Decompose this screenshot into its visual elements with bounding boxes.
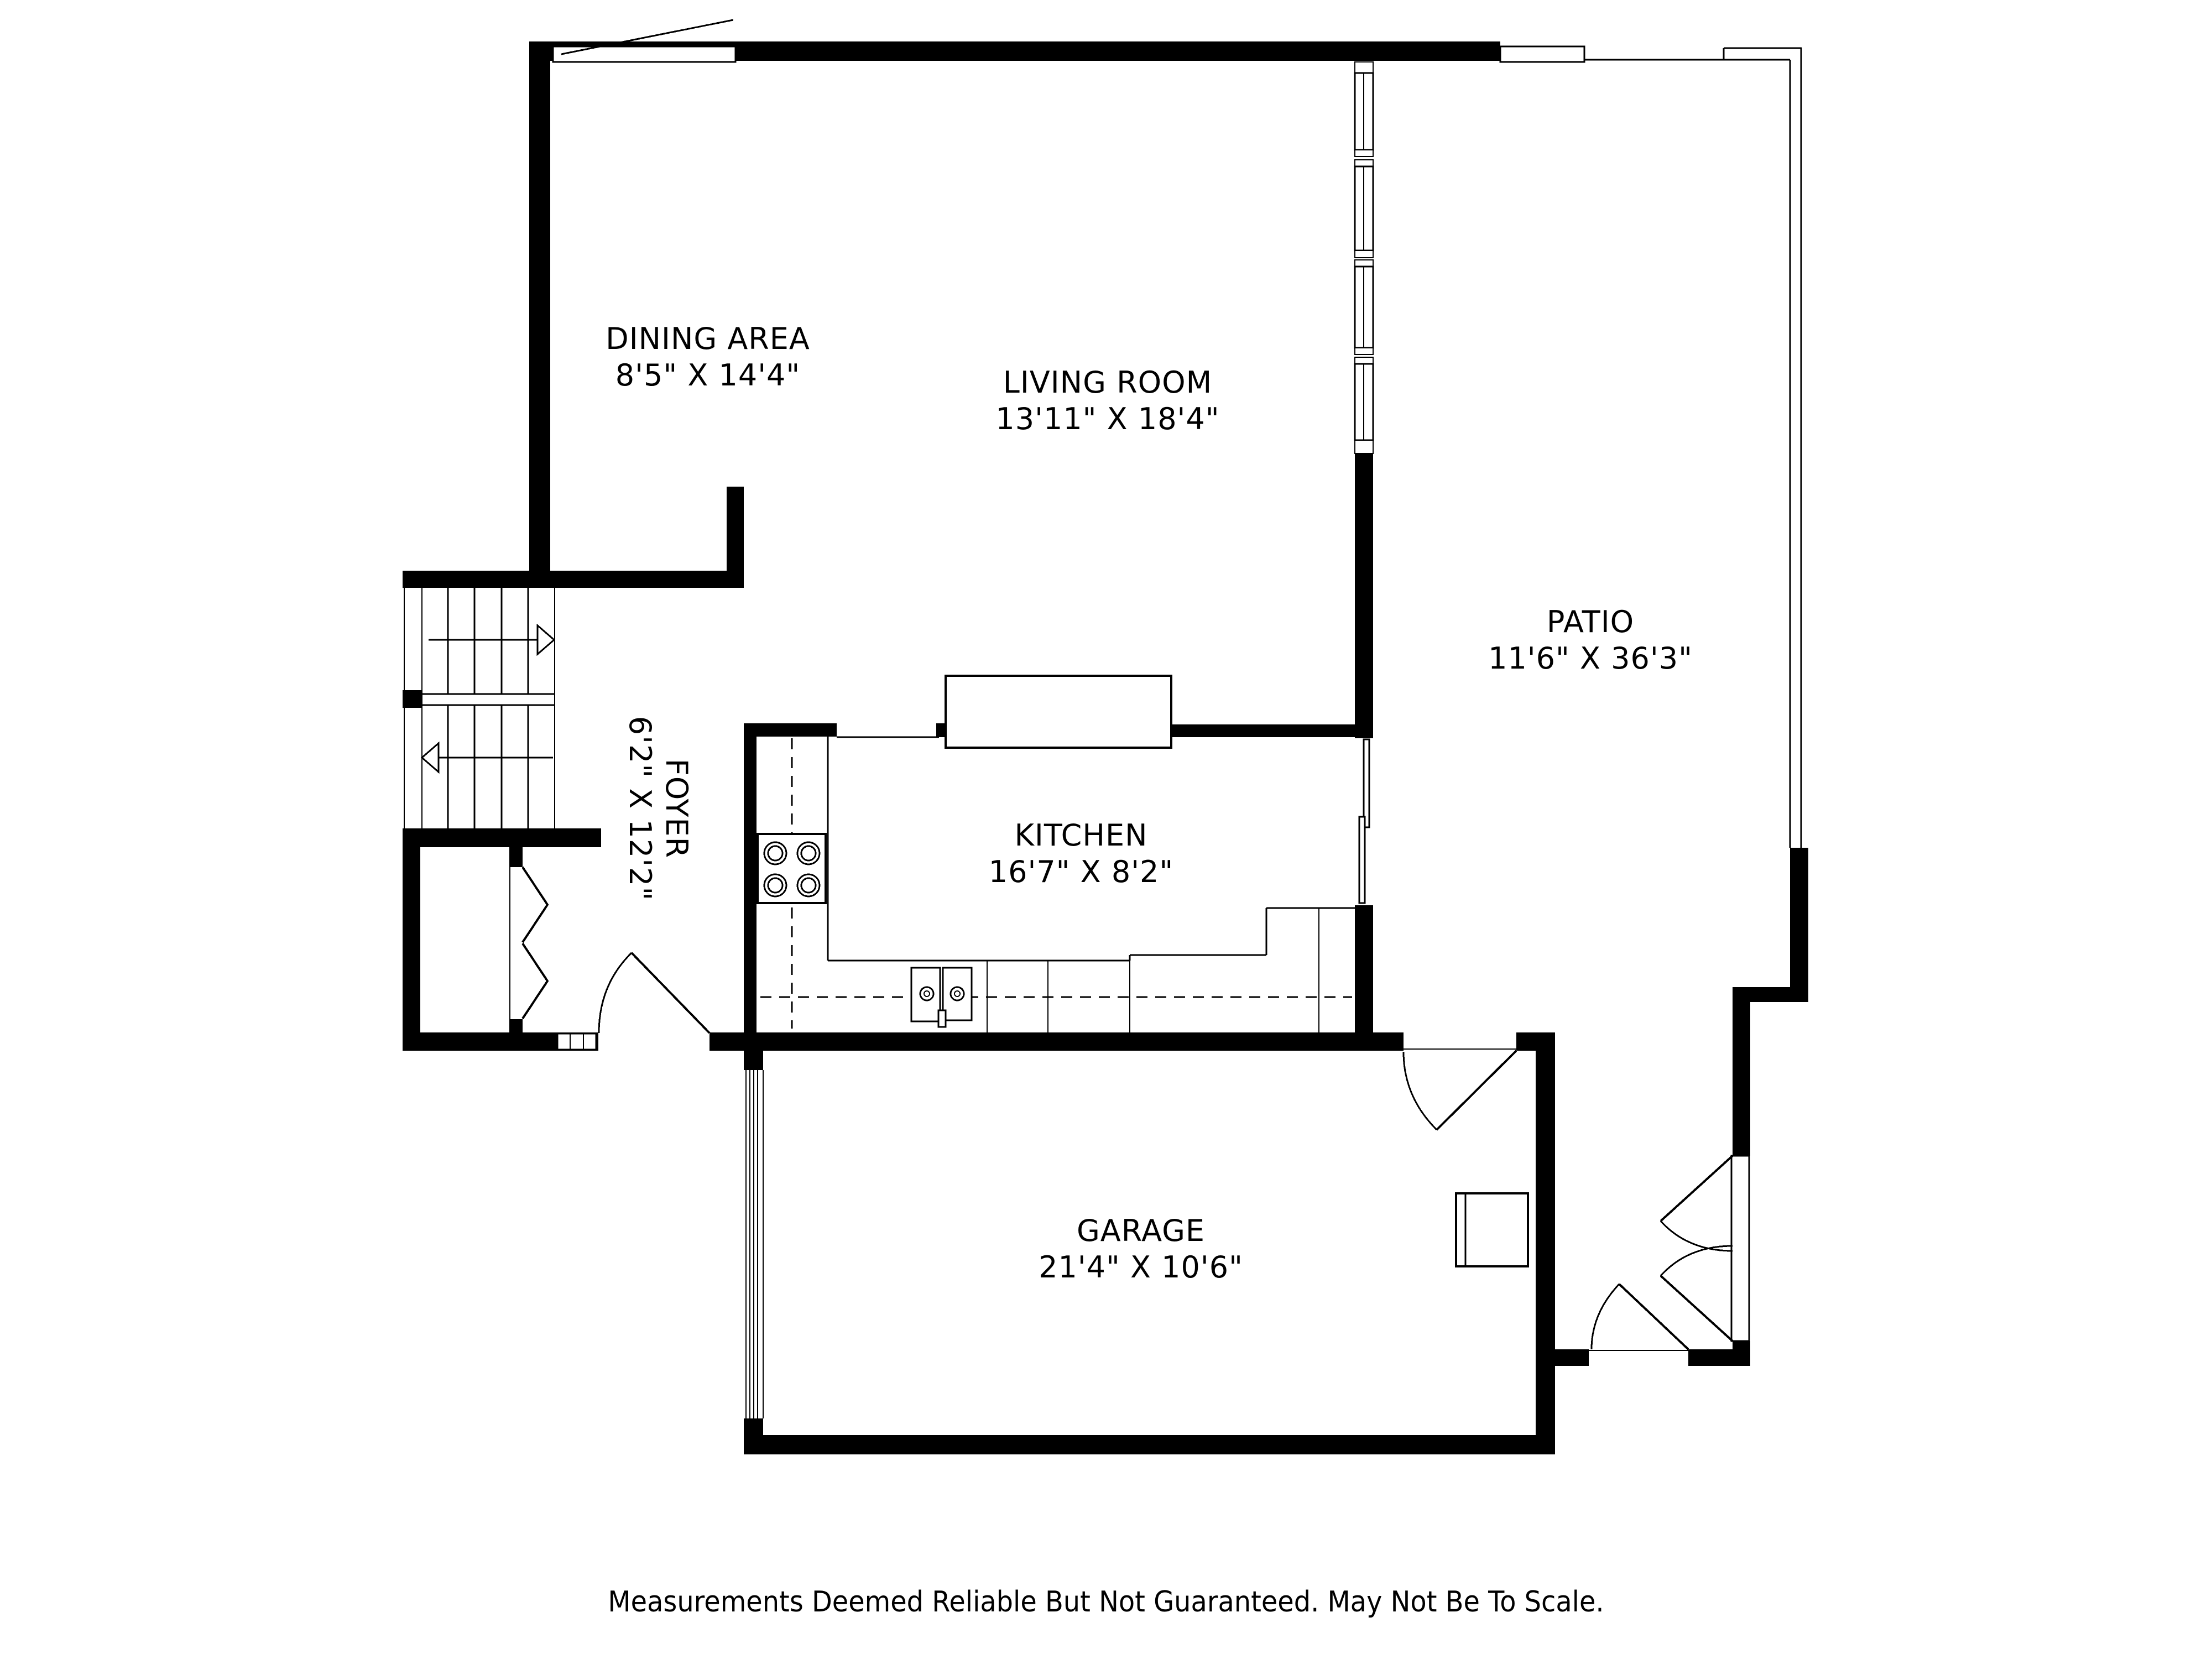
dining-window [553, 46, 735, 62]
bifold-door-icon [523, 943, 547, 1019]
room-dims: 11'6" X 36'3" [1488, 640, 1693, 677]
wall-kitchen-right-lower [1355, 905, 1373, 1051]
disclaimer-text: Measurements Deemed Reliable But Not Gua… [608, 1585, 1604, 1619]
room-dims: 13'11" X 18'4" [995, 401, 1219, 437]
room-dims: 21'4" X 10'6" [1039, 1249, 1243, 1286]
room-label-living: LIVING ROOM 13'11" X 18'4" [995, 364, 1219, 437]
sink-icon [911, 968, 972, 1027]
wall-left-foyer [403, 828, 420, 1045]
wall-patio-right-upper [1790, 848, 1808, 1002]
room-name: KITCHEN [989, 817, 1173, 854]
room-name: PATIO [1488, 604, 1693, 640]
garage-entry-door-icon [1404, 1049, 1516, 1130]
wall-kitchen-top-2 [1171, 724, 1355, 737]
bifold-door-icon [523, 867, 547, 942]
foyer-closet [510, 867, 547, 1019]
room-name: LIVING ROOM [995, 364, 1219, 401]
kitchen-sliding-door [1359, 739, 1369, 903]
stove-icon [758, 834, 826, 903]
stair-down-arrow-icon [422, 743, 553, 772]
garage-door-icon [746, 1070, 763, 1418]
wall-left-block [403, 690, 422, 708]
room-name: FOYER [658, 716, 695, 901]
wall-kitchen-top-1 [744, 723, 837, 737]
room-label-foyer: FOYER 6'2" X 12'2" [622, 716, 695, 901]
room-label-kitchen: KITCHEN 16'7" X 8'2" [989, 817, 1173, 890]
staircase [404, 588, 555, 828]
wall-dining-left [529, 41, 550, 588]
room-dims: 16'7" X 8'2" [989, 854, 1173, 890]
wall-living-right [1355, 453, 1373, 738]
wall-kitchen-left [744, 737, 757, 1032]
wall-stairhall-bottom [403, 828, 601, 847]
room-name: DINING AREA [606, 321, 810, 357]
wall-garage-right [1536, 1032, 1555, 1454]
living-window-column [1355, 62, 1373, 453]
wall-vestibule-bottom-left [1555, 1349, 1589, 1366]
kitchen-passthrough-counter [946, 676, 1171, 748]
wall-patio-step [1733, 987, 1808, 1002]
living-top-window [1500, 46, 1584, 62]
wall-garage-left-top [744, 1042, 763, 1070]
patio-boundary [1584, 48, 1802, 848]
doors [599, 953, 1733, 1350]
foyer-sidelite-window [557, 1034, 596, 1050]
wall-closet-stub-bottom [509, 1019, 523, 1034]
patio-side-window [1731, 1156, 1749, 1341]
room-label-patio: PATIO 11'6" X 36'3" [1488, 604, 1693, 677]
room-name: GARAGE [1039, 1213, 1243, 1249]
wall-patio-right-mid [1733, 1002, 1750, 1156]
room-label-garage: GARAGE 21'4" X 10'6" [1039, 1213, 1243, 1286]
front-door-icon [599, 953, 709, 1033]
french-doors-icon [1661, 1156, 1733, 1341]
wall-vestibule-bottom-right [1688, 1349, 1750, 1366]
wall-bottom-mid [709, 1032, 1404, 1051]
room-label-dining: DINING AREA 8'5" X 14'4" [606, 321, 810, 394]
side-entry-door-icon [1589, 1284, 1688, 1350]
floor-plan-page: DINING AREA 8'5" X 14'4" LIVING ROOM 13'… [0, 0, 2212, 1659]
room-dims: 8'5" X 14'4" [606, 357, 810, 394]
wall-closet-stub-top [509, 842, 523, 867]
wall-stairhall-top [403, 571, 744, 588]
wall-garage-bottom [744, 1435, 1555, 1454]
room-dims: 6'2" X 12'2" [622, 716, 658, 901]
water-heater-icon [1456, 1193, 1528, 1266]
